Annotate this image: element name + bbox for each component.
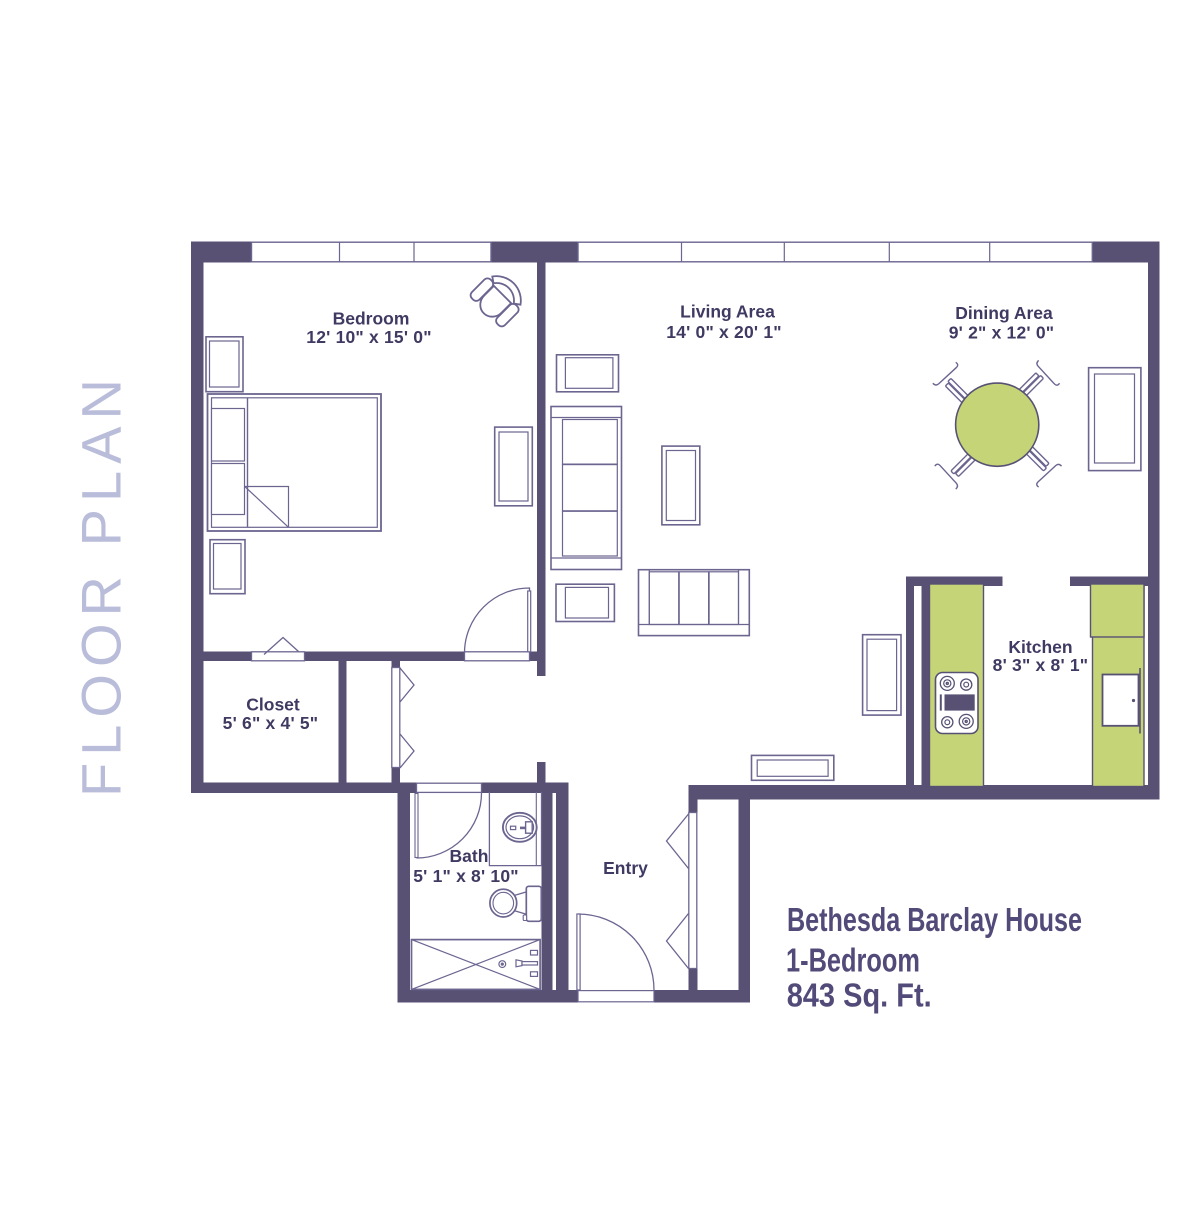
svg-text:Closet: Closet: [246, 695, 300, 715]
svg-text:Bedroom: Bedroom: [333, 309, 410, 329]
svg-text:9' 2" x 12' 0": 9' 2" x 12' 0": [949, 323, 1055, 343]
svg-text:Kitchen: Kitchen: [1008, 637, 1072, 657]
svg-text:FLOOR PLAN: FLOOR PLAN: [70, 379, 133, 797]
svg-text:843 Sq. Ft.: 843 Sq. Ft.: [787, 976, 932, 1013]
svg-text:14' 0" x 20' 1": 14' 0" x 20' 1": [666, 322, 782, 342]
svg-text:12' 10" x 15' 0": 12' 10" x 15' 0": [306, 327, 431, 347]
svg-text:Bethesda Barclay House: Bethesda Barclay House: [787, 901, 1082, 938]
svg-text:5' 1" x 8' 10": 5' 1" x 8' 10": [413, 866, 519, 886]
svg-text:1-Bedroom: 1-Bedroom: [786, 942, 920, 979]
svg-text:5' 6" x 4' 5": 5' 6" x 4' 5": [223, 713, 319, 733]
svg-text:Entry: Entry: [603, 858, 648, 878]
svg-text:Dining Area: Dining Area: [955, 303, 1053, 323]
svg-text:Bath: Bath: [450, 846, 489, 866]
svg-text:8' 3" x 8' 1": 8' 3" x 8' 1": [993, 655, 1089, 675]
svg-text:Living Area: Living Area: [680, 302, 775, 322]
